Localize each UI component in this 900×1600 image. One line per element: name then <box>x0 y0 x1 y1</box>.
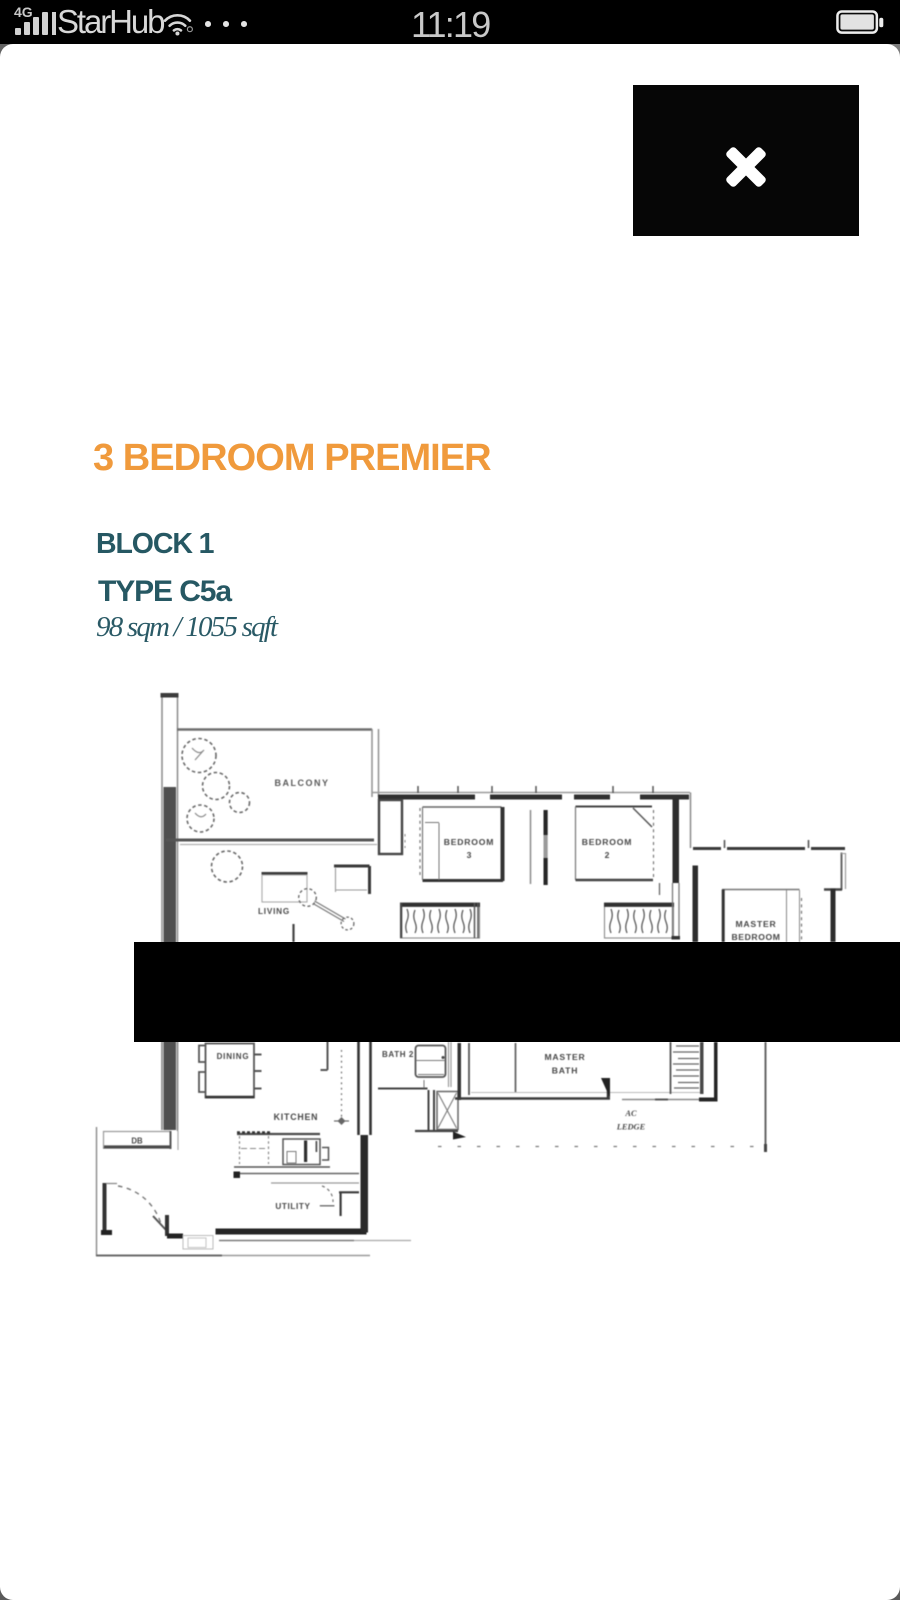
svg-text:3: 3 <box>467 850 472 860</box>
svg-text:MASTER: MASTER <box>735 919 776 929</box>
svg-text:MASTER: MASTER <box>544 1052 585 1062</box>
svg-text:AC: AC <box>624 1109 637 1118</box>
svg-text:UTILITY: UTILITY <box>275 1202 310 1211</box>
svg-text:BEDROOM: BEDROOM <box>444 837 494 847</box>
svg-text:LEDGE: LEDGE <box>616 1123 646 1132</box>
svg-text:BATH: BATH <box>552 1066 578 1076</box>
svg-text:LIVING: LIVING <box>258 907 290 916</box>
svg-text:BEDROOM: BEDROOM <box>582 837 632 847</box>
svg-text:BALCONY: BALCONY <box>275 778 330 788</box>
svg-text:BEDROOM: BEDROOM <box>731 932 780 942</box>
svg-text:BATH 2: BATH 2 <box>382 1050 414 1059</box>
svg-text:2: 2 <box>605 850 610 860</box>
svg-text:DINING: DINING <box>217 1052 250 1061</box>
svg-text:DB: DB <box>131 1137 143 1146</box>
svg-text:KITCHEN: KITCHEN <box>274 1112 319 1122</box>
